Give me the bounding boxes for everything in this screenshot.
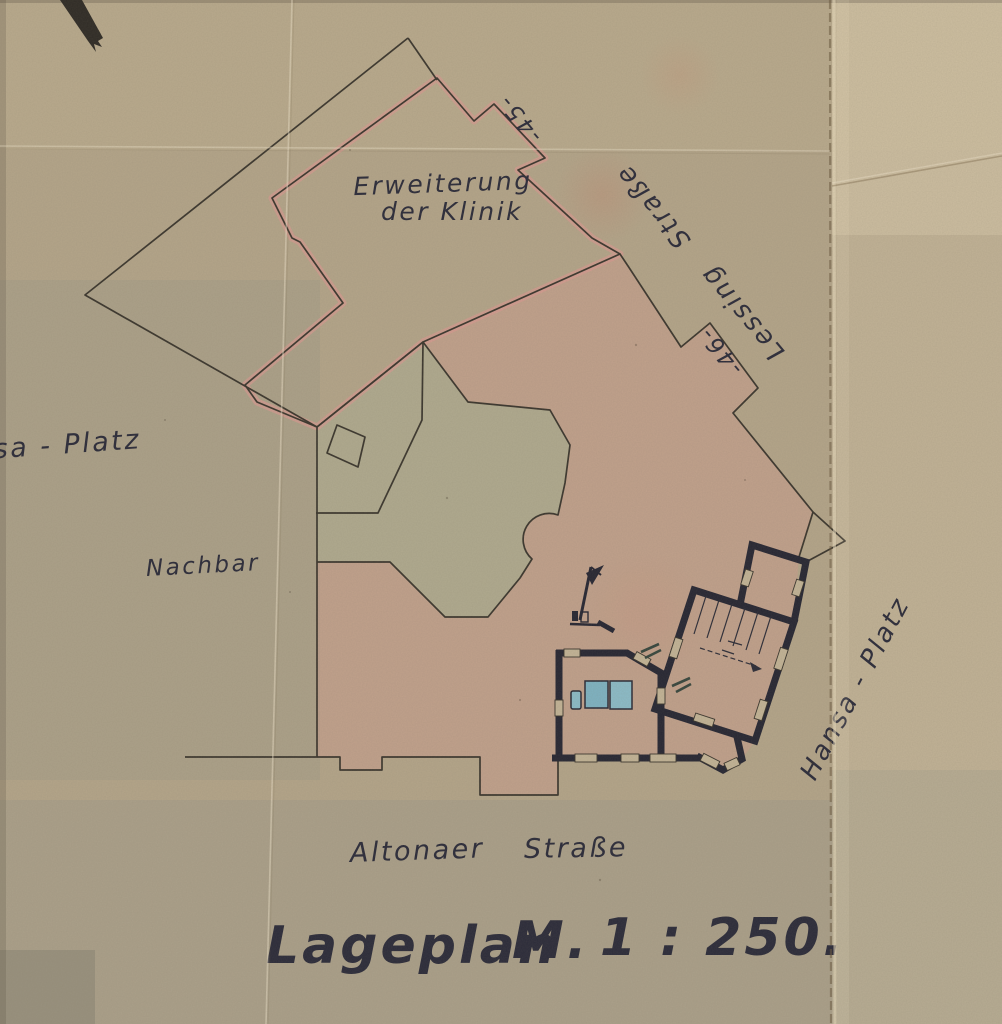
site-plan-drawing: Erweiterung der Klinik Lessing Straße -4… bbox=[0, 0, 1002, 1024]
paper-grain-texture bbox=[0, 0, 1002, 1024]
scanned-site-plan-page: Erweiterung der Klinik Lessing Straße -4… bbox=[0, 0, 1002, 1024]
